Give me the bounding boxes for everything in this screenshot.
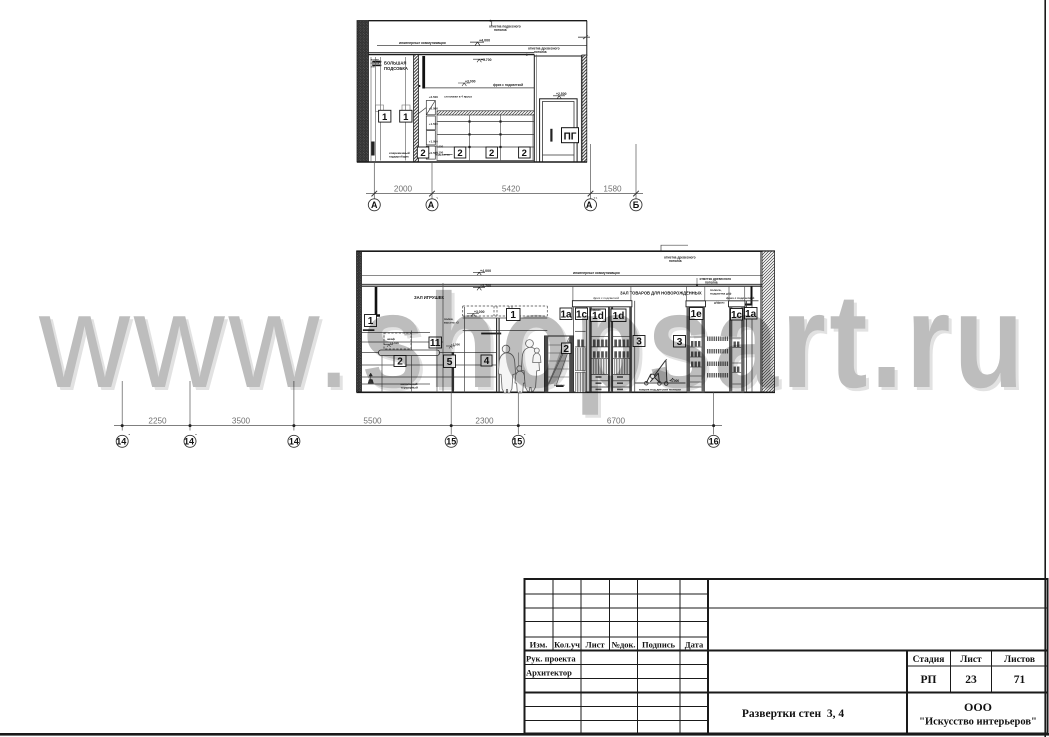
svg-text:14: 14 — [184, 437, 194, 447]
svg-text:2: 2 — [489, 148, 494, 159]
svg-text:Дата: Дата — [685, 640, 704, 650]
svg-text:стеллажи в 4 яруса: стеллажи в 4 яруса — [444, 95, 472, 99]
svg-text:`: ` — [195, 435, 197, 441]
svg-text:Подпись: Подпись — [642, 640, 675, 650]
svg-text:Изм.: Изм. — [530, 640, 548, 650]
svg-text:Архитектор: Архитектор — [526, 668, 572, 678]
svg-text:+3.000: +3.000 — [465, 80, 476, 84]
svg-text:№док.: №док. — [611, 640, 635, 650]
svg-text:Лист: Лист — [960, 655, 982, 665]
svg-text:+2.500: +2.500 — [429, 95, 439, 99]
svg-text:23: 23 — [965, 674, 977, 686]
svg-text:`: ` — [436, 198, 438, 204]
svg-text:2000: 2000 — [394, 184, 413, 193]
svg-text:+2.000: +2.000 — [429, 106, 439, 110]
svg-text:16: 16 — [709, 437, 719, 447]
svg-text:1: 1 — [382, 112, 388, 123]
svg-text:Лист: Лист — [585, 640, 605, 650]
svg-text:+4.000: +4.000 — [479, 39, 490, 43]
svg-text:`: ` — [128, 435, 130, 441]
svg-text:+3.700: +3.700 — [481, 58, 492, 62]
svg-text:ООО: ООО — [964, 700, 992, 714]
svg-text:фриз с подсветкой: фриз с подсветкой — [493, 83, 523, 87]
svg-text:2: 2 — [457, 148, 462, 159]
svg-text:потолка: потолка — [494, 28, 507, 32]
svg-text:1: 1 — [403, 112, 409, 123]
svg-text:2: 2 — [420, 148, 425, 159]
svg-text:14: 14 — [289, 437, 299, 447]
svg-text:ПГ: ПГ — [564, 132, 577, 143]
svg-text:15: 15 — [446, 437, 456, 447]
svg-text:Б: Б — [633, 200, 640, 210]
svg-text:потолка: потолка — [669, 259, 682, 263]
svg-text:А: А — [586, 200, 593, 210]
svg-text:1580: 1580 — [603, 184, 622, 193]
svg-text:+2.500: +2.500 — [556, 92, 567, 96]
svg-text:Кол.уч: Кол.уч — [554, 640, 580, 650]
svg-text:``: `` — [594, 198, 598, 204]
svg-text:2: 2 — [522, 148, 527, 159]
svg-text:+0.100: +0.100 — [435, 150, 444, 154]
svg-text:Стадия: Стадия — [913, 655, 945, 665]
svg-text:Рук. проекта: Рук. проекта — [526, 654, 576, 664]
svg-text:БОЛЬШАЯ: БОЛЬШАЯ — [384, 61, 406, 66]
svg-text:ПОДСОБКА: ПОДСОБКА — [384, 66, 408, 71]
svg-text:А: А — [428, 200, 435, 210]
svg-text:А: А — [371, 200, 378, 210]
svg-text:5420: 5420 — [502, 184, 521, 193]
svg-text:shopsart.ru: shopsart.ru — [361, 267, 1027, 416]
svg-text:`: ` — [524, 435, 526, 441]
svg-text:гардеробщик: гардеробщик — [389, 155, 409, 159]
svg-text:потолка: потолка — [534, 50, 547, 54]
svg-text:+0.900: +0.900 — [435, 145, 444, 149]
svg-text:www.: www. — [38, 267, 355, 416]
svg-text:Развертки стен 3, 4: Развертки стен 3, 4 — [742, 708, 844, 720]
svg-text:инженерные коммуникации: инженерные коммуникации — [399, 41, 446, 45]
svg-text:Листов: Листов — [1004, 655, 1035, 665]
svg-text:РП: РП — [921, 674, 937, 686]
svg-text:71: 71 — [1014, 674, 1026, 686]
svg-text:"Искусство интерьеров": "Искусство интерьеров" — [919, 717, 1037, 728]
svg-text:14: 14 — [116, 437, 126, 447]
svg-text:15: 15 — [512, 437, 522, 447]
